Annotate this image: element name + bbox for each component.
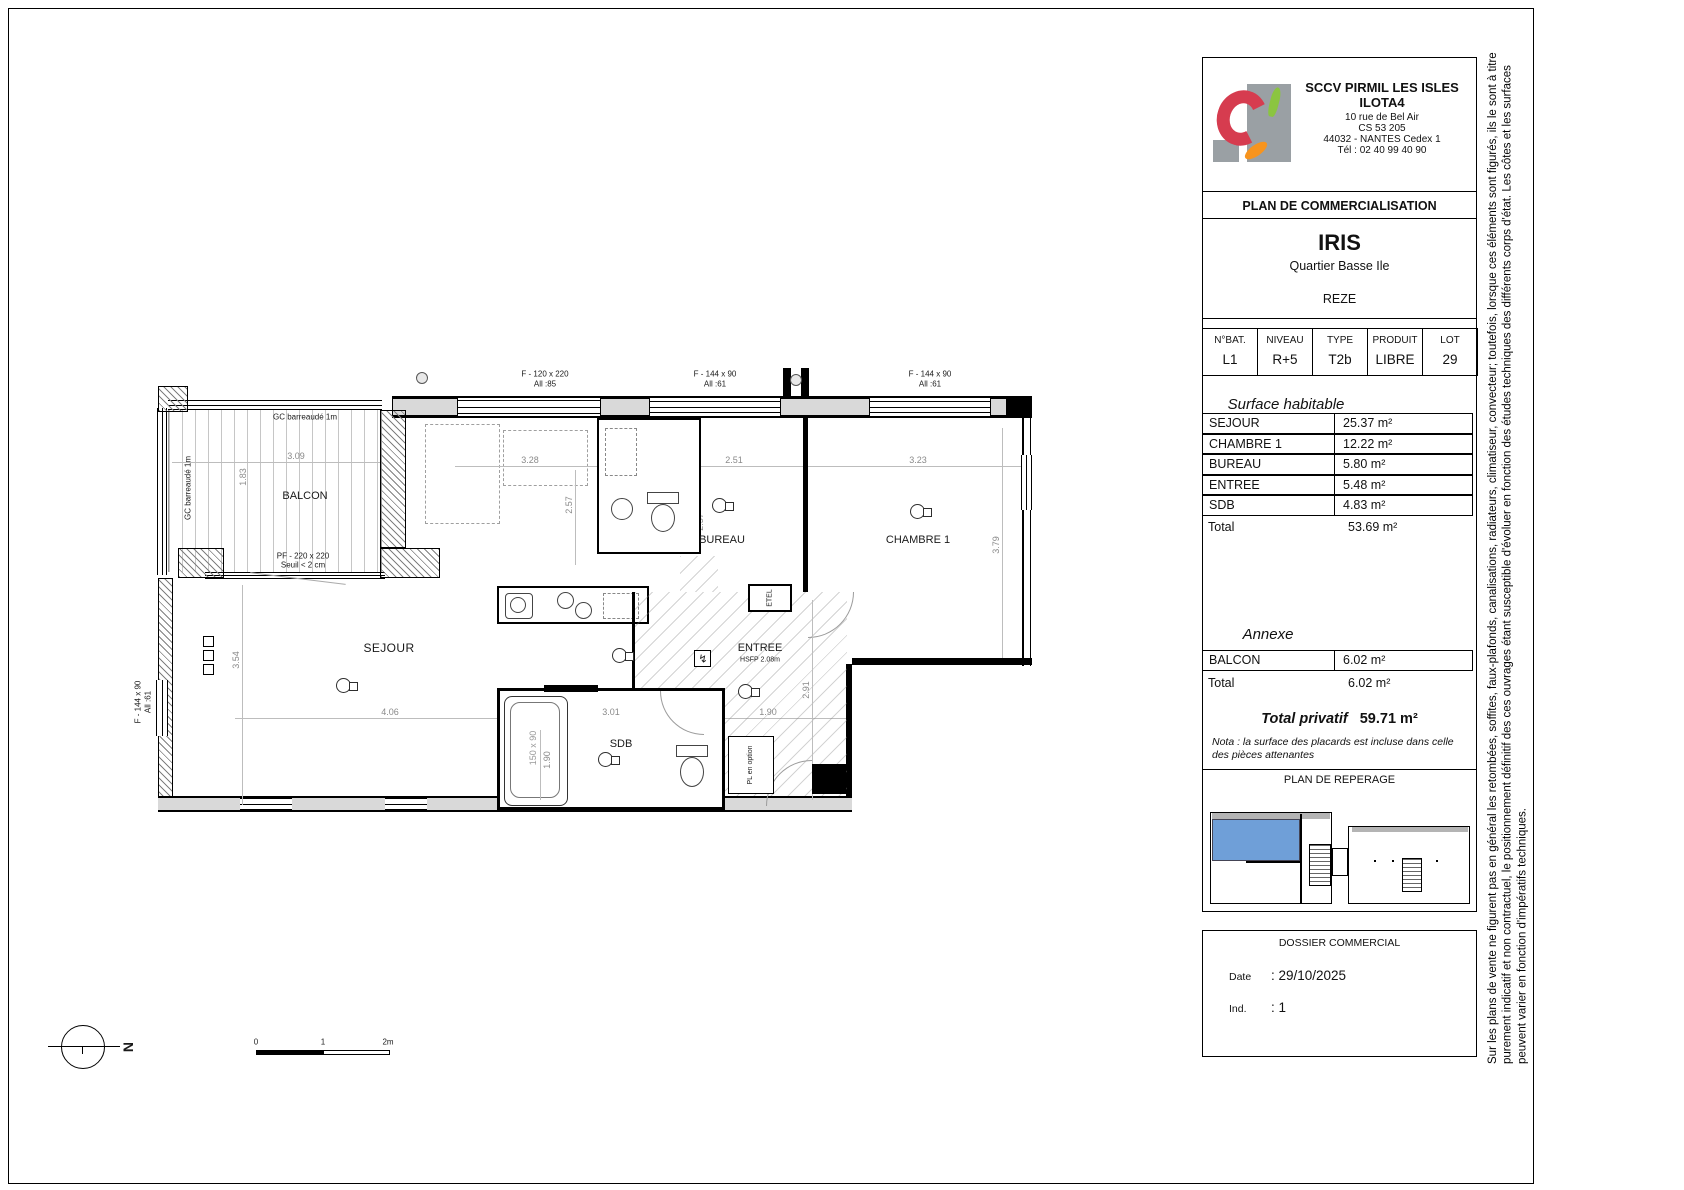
balcony-railing-top xyxy=(168,400,382,410)
scale-tick-2m: 2m xyxy=(382,1038,393,1047)
dim-value: 2.51 xyxy=(725,455,743,465)
surface-title: Surface habitable xyxy=(1211,396,1361,413)
lot-value: T2b xyxy=(1313,350,1367,375)
dossier-date-value: : 29/10/2025 xyxy=(1271,968,1346,983)
dim-value: 2.57 xyxy=(564,496,574,514)
window-glazing xyxy=(870,401,990,413)
window-label: All :61 xyxy=(704,380,726,389)
lot-col-niveau: NIVEAU R+5 xyxy=(1258,329,1313,375)
dim-value: 1.83 xyxy=(238,468,248,486)
wc-tank-icon xyxy=(676,745,708,757)
room-label-entree: ENTREE xyxy=(738,642,783,654)
lot-col-type: TYPE T2b xyxy=(1313,329,1368,375)
dossier-ind-value: : 1 xyxy=(1271,1000,1286,1015)
plan-sheet: F - 120 x 220 All :85 F - 144 x 90 All :… xyxy=(0,0,1684,1190)
annexe-value: 6.02 m² xyxy=(1335,653,1472,667)
radiator-symbol xyxy=(203,650,214,661)
ceiling-light-icon xyxy=(612,648,627,663)
program-city: REZE xyxy=(1203,292,1476,306)
room-label-bureau: BUREAU xyxy=(699,534,745,546)
company-name: SCCV PIRMIL LES ISLES xyxy=(1289,80,1475,95)
dim-value: 1.90 xyxy=(542,751,552,769)
surface-row: CHAMBRE 1 12.22 m² xyxy=(1202,434,1473,455)
north-label: N xyxy=(120,1042,136,1052)
dossier-date-label: Date xyxy=(1229,971,1251,983)
door-note: Seuil < 2 cm xyxy=(281,561,325,570)
etel-label: ETEL xyxy=(767,589,774,607)
surface-value: 25.37 m² xyxy=(1335,416,1472,430)
scale-tick-1: 1 xyxy=(321,1038,325,1047)
company-phone: Tél : 02 40 99 40 90 xyxy=(1289,145,1475,156)
wall-corner-hatched xyxy=(158,386,188,412)
door-note: PF - 220 x 220 xyxy=(277,552,329,561)
surface-total-row: Total 53.69 m² xyxy=(1202,516,1473,537)
lot-table: N°BAT. L1 NIVEAU R+5 TYPE T2b PRODUIT LI… xyxy=(1202,328,1478,376)
dim-line xyxy=(455,466,1026,467)
legal-disclaimer: Sur les plans de vente ne figurent pas e… xyxy=(1486,52,1530,1064)
lot-col-bat: N°BAT. L1 xyxy=(1203,329,1258,375)
wall-post xyxy=(801,368,809,398)
round-column xyxy=(416,372,428,384)
disclaimer-line1: Sur les plans de vente ne figurent pas e… xyxy=(1486,52,1501,1064)
lot-value: L1 xyxy=(1203,350,1257,375)
electrical-panel-icon: ↯ xyxy=(694,650,711,667)
surface-row: SEJOUR 25.37 m² xyxy=(1202,413,1473,434)
lot-header: N°BAT. xyxy=(1203,329,1257,350)
radiator-symbol xyxy=(203,636,214,647)
wc-tank-icon xyxy=(647,492,679,504)
program-name: IRIS xyxy=(1203,230,1476,256)
dim-value: 3.09 xyxy=(287,451,305,461)
ceiling-light-icon xyxy=(336,678,351,693)
dim-value: 3.23 xyxy=(909,455,927,465)
reperage-column xyxy=(1436,860,1438,862)
wall-pier xyxy=(780,398,870,416)
lot-value: LIBRE xyxy=(1368,350,1422,375)
entry-door xyxy=(812,764,846,794)
cif-logo xyxy=(1213,84,1291,162)
window-glazing xyxy=(458,400,600,414)
surface-value: 5.80 m² xyxy=(1335,457,1472,471)
window-glazing xyxy=(385,798,427,810)
dim-line xyxy=(1002,428,1003,658)
annexe-title: Annexe xyxy=(1203,626,1333,643)
window-label: F - 144 x 90 xyxy=(134,681,143,724)
reperage-map xyxy=(1206,800,1474,910)
reperage-stairs xyxy=(1309,844,1331,886)
scale-segment-black xyxy=(256,1050,323,1055)
railing-note: GC barreaudé 1m xyxy=(273,413,337,422)
nota-text: Nota : la surface des placards est inclu… xyxy=(1212,736,1468,761)
entry-floor-hatch xyxy=(680,556,718,592)
vanity-counter xyxy=(544,685,598,692)
reperage-wall xyxy=(1300,814,1302,903)
dim-line xyxy=(172,462,382,463)
reperage-column xyxy=(1374,860,1376,862)
company-address2: CS 53 205 xyxy=(1289,123,1475,134)
reperage-stairs xyxy=(1402,858,1422,892)
wall-bureau-chambre xyxy=(803,418,808,592)
surface-value: 4.83 m² xyxy=(1335,498,1472,512)
closet-label: PL en option xyxy=(747,740,755,790)
basin-icon xyxy=(611,498,633,520)
reperage-column xyxy=(1392,860,1394,862)
surface-room: BUREAU xyxy=(1203,455,1335,474)
dim-value: 4.06 xyxy=(381,707,399,717)
window-glazing xyxy=(156,680,168,736)
window-glazing xyxy=(650,401,780,413)
railing-note: GC barreaudé 1m xyxy=(184,456,193,520)
annexe-total-row: Total 6.02 m² xyxy=(1202,672,1473,693)
dim-value: 2.91 xyxy=(801,681,811,699)
dossier-ind-label: Ind. xyxy=(1229,1003,1247,1015)
wall-hatched xyxy=(380,548,440,578)
bathtub-size: 150 x 90 xyxy=(528,731,538,766)
company-name2: ILOTA4 xyxy=(1289,95,1475,110)
hob-icon xyxy=(557,592,574,609)
total-privatif-value: 59.71 m² xyxy=(1360,711,1418,727)
surface-room: CHAMBRE 1 xyxy=(1203,435,1335,454)
room-label-chambre1: CHAMBRE 1 xyxy=(886,534,950,546)
title-block: SCCV PIRMIL LES ISLES ILOTA4 10 rue de B… xyxy=(1202,57,1477,912)
disclaimer-line2: purement indicatif et non contractuel, l… xyxy=(1501,52,1516,1064)
room-label-sdb: SDB xyxy=(610,738,633,750)
wall-hatched xyxy=(380,410,406,548)
company-address1: 10 rue de Bel Air xyxy=(1289,112,1475,123)
surface-row: ENTREE 5.48 m² xyxy=(1202,475,1473,496)
room-label-balcon: BALCON xyxy=(282,490,327,502)
wc-bowl-icon xyxy=(651,504,675,532)
balcony-railing-left xyxy=(157,408,167,575)
reperage-highlighted-unit xyxy=(1212,819,1300,861)
dossier-title: DOSSIER COMMERCIAL xyxy=(1203,937,1476,949)
reperage-wall xyxy=(1246,861,1300,863)
dossier-commercial: DOSSIER COMMERCIAL Date : 29/10/2025 Ind… xyxy=(1202,930,1477,1057)
wall-pier xyxy=(600,398,650,416)
total-privatif-label: Total privatif xyxy=(1261,711,1347,727)
surface-row: BUREAU 5.80 m² xyxy=(1202,454,1473,475)
surface-value: 12.22 m² xyxy=(1335,437,1472,451)
window-label: All :61 xyxy=(144,691,153,713)
radiator-symbol xyxy=(203,664,214,675)
round-column xyxy=(790,374,802,386)
lot-col-produit: PRODUIT LIBRE xyxy=(1368,329,1423,375)
wall-post xyxy=(783,368,791,398)
lot-header: NIVEAU xyxy=(1258,329,1312,350)
sheet-title: PLAN DE COMMERCIALISATION xyxy=(1203,191,1476,219)
dim-line xyxy=(540,730,541,800)
ceiling-light-icon xyxy=(738,684,753,699)
program-district: Quartier Basse Ile xyxy=(1203,259,1476,273)
lot-header: TYPE xyxy=(1313,329,1367,350)
wall-hatched xyxy=(178,548,224,578)
dim-value: 3.01 xyxy=(602,707,620,717)
wall-entree-sejour xyxy=(632,592,635,688)
fridge-icon xyxy=(605,428,637,476)
surface-room: SDB xyxy=(1203,496,1335,515)
annexe-total-value: 6.02 m² xyxy=(1340,676,1473,690)
company-block: SCCV PIRMIL LES ISLES ILOTA4 10 rue de B… xyxy=(1289,80,1475,156)
dim-value: 3.28 xyxy=(521,455,539,465)
room-sublabel-entree: HSFP 2.08m xyxy=(740,657,780,664)
window-glazing xyxy=(1021,455,1032,510)
surface-total-value: 53.69 m² xyxy=(1340,520,1473,534)
lot-header: PRODUIT xyxy=(1368,329,1422,350)
annexe-room: BALCON xyxy=(1203,651,1335,670)
window-label: All :85 xyxy=(534,380,556,389)
ceiling-light-icon xyxy=(712,498,727,513)
total-privatif: Total privatif 59.71 m² xyxy=(1203,711,1476,727)
kitchen-unit-dashed xyxy=(425,424,500,524)
wall-corner xyxy=(1006,398,1032,418)
north-tick xyxy=(82,1046,83,1054)
reperage-link xyxy=(1332,848,1348,876)
kitchen-counter xyxy=(497,586,649,624)
surface-room: SEJOUR xyxy=(1203,414,1335,433)
room-label-sejour: SEJOUR xyxy=(363,641,414,655)
annexe-total-label: Total xyxy=(1202,676,1340,690)
lot-header: LOT xyxy=(1423,329,1477,350)
reperage-title: PLAN DE REPERAGE xyxy=(1203,769,1476,786)
wc-bowl-icon xyxy=(680,757,704,787)
window-glazing xyxy=(240,798,292,810)
disclaimer-line3: peuvent varier en fonction d'impératifs … xyxy=(1515,52,1530,1064)
sink-bowl-icon xyxy=(510,597,526,613)
wc-room xyxy=(597,418,701,554)
hob-icon xyxy=(575,602,592,619)
lot-value: R+5 xyxy=(1258,350,1312,375)
lot-col-lot: LOT 29 xyxy=(1423,329,1477,375)
window-label: F - 144 x 90 xyxy=(909,370,952,379)
ceiling-light-icon xyxy=(598,752,613,767)
dim-line xyxy=(575,470,576,565)
wall-chambre-bottom xyxy=(852,658,1032,665)
surface-value: 5.48 m² xyxy=(1335,478,1472,492)
window-label: F - 120 x 220 xyxy=(521,370,568,379)
company-address3: 44032 - NANTES Cedex 1 xyxy=(1289,134,1475,145)
dim-line xyxy=(242,585,243,805)
lot-value: 29 xyxy=(1423,350,1477,375)
window-label: F - 144 x 90 xyxy=(694,370,737,379)
divider xyxy=(1203,318,1476,319)
annexe-row: BALCON 6.02 m² xyxy=(1202,650,1473,671)
lightning-glyph: ↯ xyxy=(698,653,707,666)
ceiling-light-icon xyxy=(910,504,925,519)
window-label: All :61 xyxy=(919,380,941,389)
dim-value: 3.54 xyxy=(231,651,241,669)
reperage-balcony-strip xyxy=(1352,827,1468,832)
surface-room: ENTREE xyxy=(1203,476,1335,495)
dim-value: 1.90 xyxy=(759,707,777,717)
north-line xyxy=(48,1046,120,1047)
scale-tick-0: 0 xyxy=(254,1038,258,1047)
surface-total-label: Total xyxy=(1202,520,1340,534)
scale-segment-white xyxy=(323,1050,390,1055)
dim-value: 3.79 xyxy=(991,536,1001,554)
surface-row: SDB 4.83 m² xyxy=(1202,495,1473,516)
